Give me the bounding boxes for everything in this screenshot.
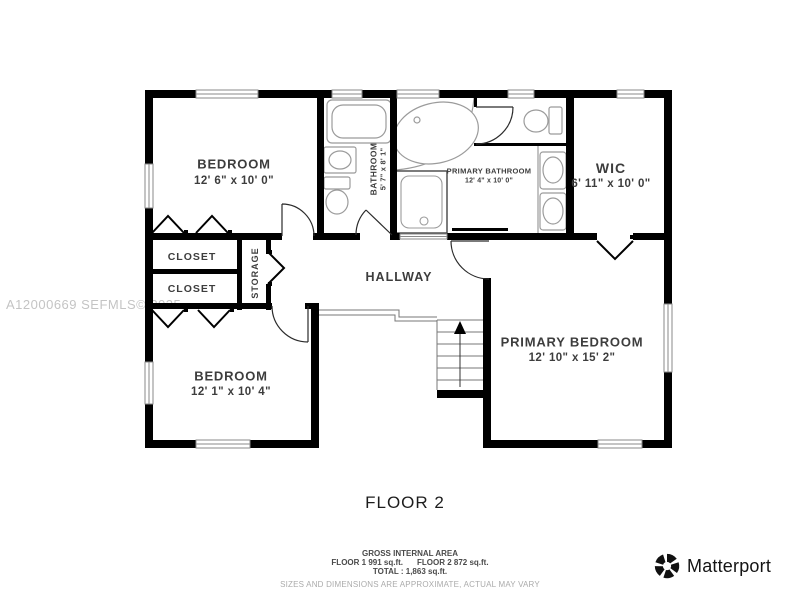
bathtub-icon [327,100,391,143]
disclaimer: SIZES AND DIMENSIONS ARE APPROXIMATE, AC… [280,580,540,589]
room-label-hallway: HALLWAY [366,270,433,284]
floor1-area: FLOOR 1 991 sq.ft. [331,558,403,567]
matterport-logo-icon [652,551,682,581]
wc-toilet-icon [524,107,562,134]
room-label-bedroom-bottom: BEDROOM [194,369,268,384]
room-label-primary-bathroom: PRIMARY BATHROOM [447,167,532,176]
floor-plan-page: A12000669 SEFMLS© 2025 [0,0,800,613]
toilet-icon [324,177,350,214]
matterport-logo: Matterport [652,551,771,581]
room-dims-wic: 6' 11" x 10' 0" [571,178,650,190]
room-dims-bedroom-top: 12' 6" x 10' 0" [194,175,274,187]
room-label-primary-bedroom: PRIMARY BEDROOM [501,335,644,350]
bathroom-name: BATHROOM [369,143,379,196]
room-dims-primary-bedroom: 12' 10" x 15' 2" [529,352,616,364]
room-label-closet-bottom: CLOSET [168,283,217,295]
gross-internal-area-title: GROSS INTERNAL AREA [362,549,458,558]
bathroom-dims: 5' 7" x 8' 1" [379,143,388,196]
double-sink-icon [538,146,566,233]
matterport-logo-text: Matterport [687,556,771,577]
total-area-line: TOTAL : 1,863 sq.ft. [373,567,447,576]
room-label-wic: WIC [596,160,626,176]
sink-icon [324,147,356,173]
floor-title: FLOOR 2 [365,493,445,513]
floor-areas-line: FLOOR 1 991 sq.ft.FLOOR 2 872 sq.ft. [331,558,488,567]
room-label-bathroom: BATHROOM 5' 7" x 8' 1" [369,143,388,196]
railing [319,310,437,321]
room-label-closet-top: CLOSET [168,251,217,263]
corner-tub-icon [387,93,485,172]
shower-icon [396,171,447,233]
floor2-area: FLOOR 2 872 sq.ft. [417,558,489,567]
room-label-storage: STORAGE [250,247,260,298]
floor-plan-drawing [0,0,800,613]
room-label-bedroom-top: BEDROOM [197,157,271,172]
room-dims-primary-bathroom: 12' 4" x 10' 0" [465,178,513,185]
room-dims-bedroom-bottom: 12' 1" x 10' 4" [191,386,271,398]
stairs-up-arrow-icon [454,321,466,387]
